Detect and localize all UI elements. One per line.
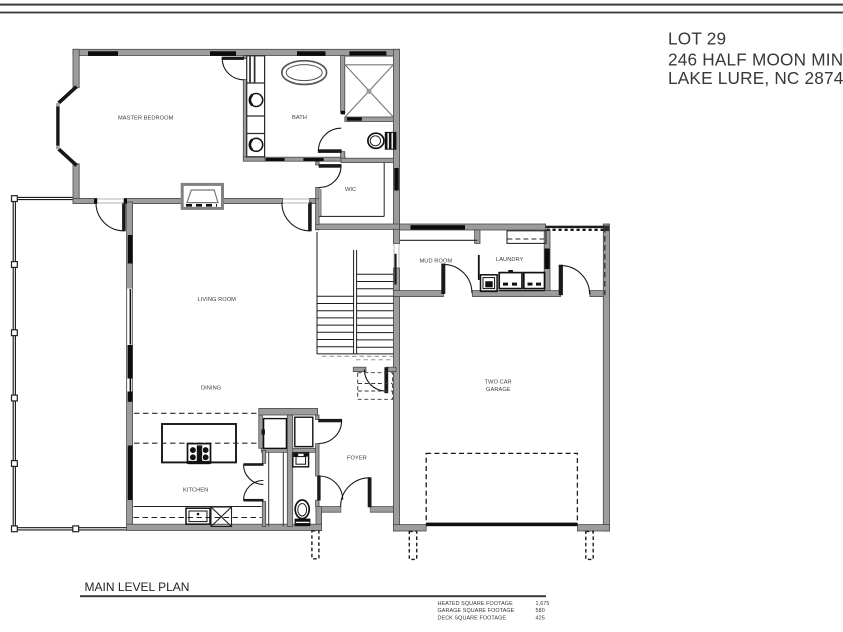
svg-text:DECK SQUARE FOOTAGE: DECK SQUARE FOOTAGE: [438, 615, 507, 621]
svg-text:GARAGE: GARAGE: [486, 387, 511, 393]
svg-text:1,675: 1,675: [536, 601, 550, 607]
svg-text:425: 425: [536, 615, 545, 621]
svg-text:DINING: DINING: [201, 386, 221, 392]
svg-text:LAUNDRY: LAUNDRY: [496, 257, 524, 263]
svg-text:LIVING ROOM: LIVING ROOM: [198, 297, 237, 303]
svg-text:246 HALF MOON MINE: 246 HALF MOON MINE: [668, 50, 843, 70]
svg-text:FOYER: FOYER: [347, 456, 367, 462]
svg-text:WIC: WIC: [345, 187, 356, 193]
svg-text:LAKE LURE, NC 28746: LAKE LURE, NC 28746: [668, 68, 843, 88]
svg-text:HEATED SQUARE FOOTAGE: HEATED SQUARE FOOTAGE: [438, 601, 514, 607]
svg-text:MASTER BEDROOM: MASTER BEDROOM: [118, 116, 174, 122]
svg-text:580: 580: [536, 608, 545, 614]
svg-text:KITCHEN: KITCHEN: [183, 488, 208, 494]
svg-text:GARAGE SQUARE FOOTAGE: GARAGE SQUARE FOOTAGE: [438, 608, 515, 614]
svg-text:LOT 29: LOT 29: [668, 28, 726, 48]
svg-text:BATH: BATH: [292, 115, 307, 121]
svg-text:TWO CAR: TWO CAR: [485, 380, 512, 386]
svg-text:MUD ROOM: MUD ROOM: [420, 259, 453, 265]
svg-text:MAIN LEVEL PLAN: MAIN LEVEL PLAN: [85, 580, 190, 594]
